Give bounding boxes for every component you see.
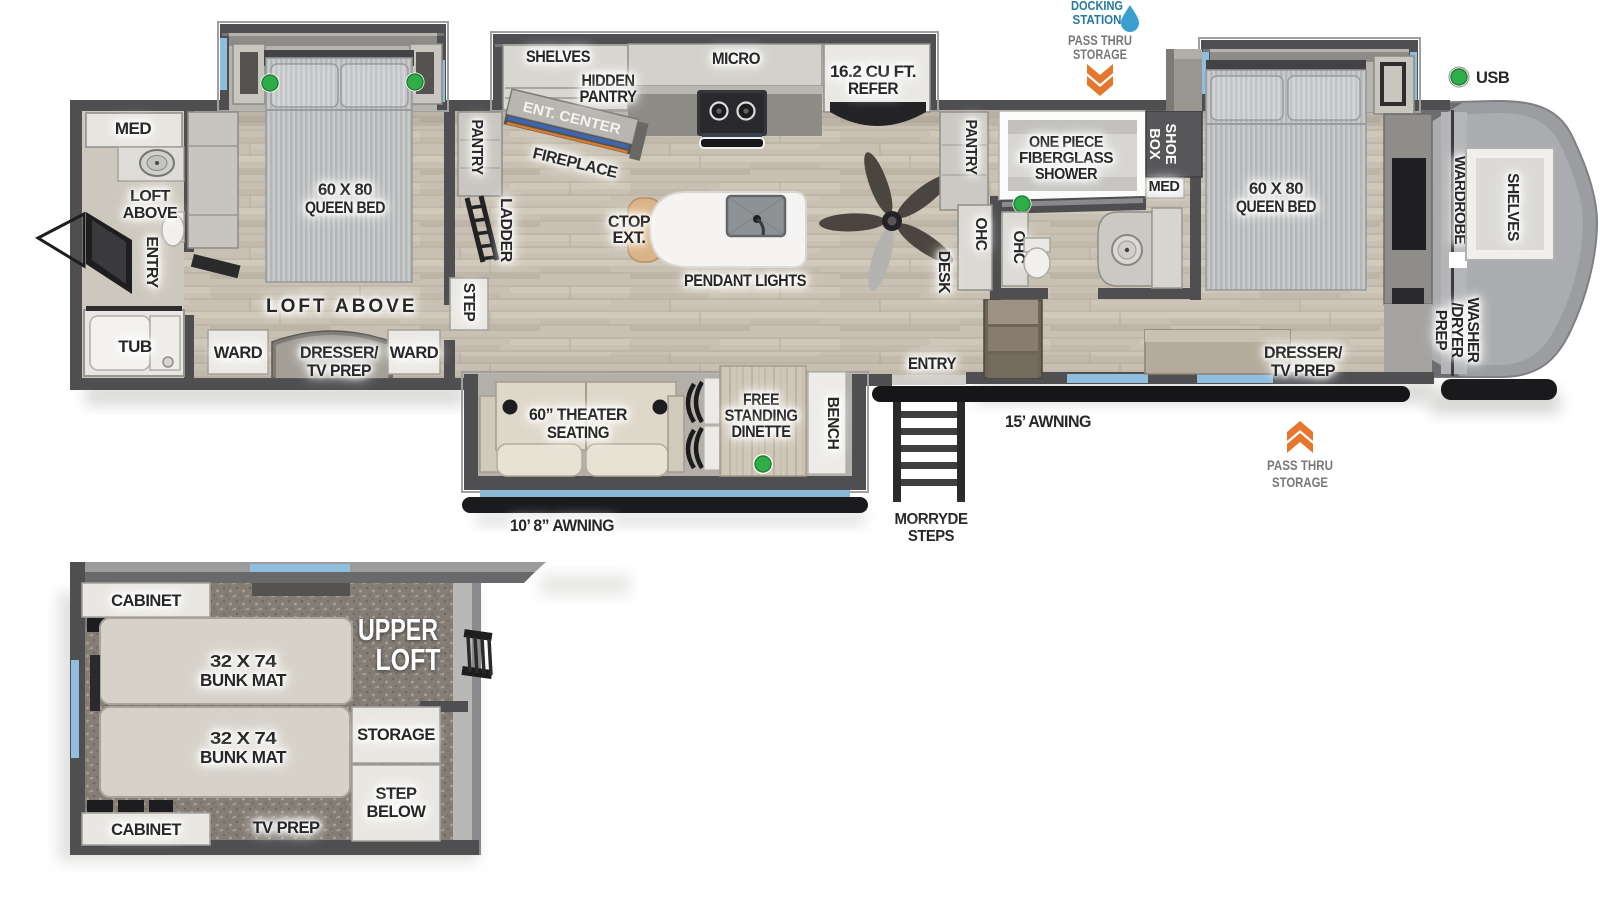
svg-text:CABINET: CABINET: [111, 821, 181, 839]
svg-text:BOX: BOX: [1146, 128, 1162, 160]
svg-text:STORAGE: STORAGE: [1073, 47, 1127, 62]
svg-text:60 X 80: 60 X 80: [1249, 180, 1303, 198]
svg-text:WARD: WARD: [214, 344, 263, 362]
svg-text:REFER: REFER: [848, 80, 899, 98]
svg-text:STORAGE: STORAGE: [357, 726, 435, 744]
svg-text:STEP: STEP: [460, 283, 477, 322]
svg-text:BUNK MAT: BUNK MAT: [200, 747, 287, 767]
svg-text:BELOW: BELOW: [367, 803, 427, 821]
svg-text:TUB: TUB: [118, 337, 152, 356]
svg-text:EXT.: EXT.: [613, 229, 646, 247]
svg-text:ONE PIECE: ONE PIECE: [1029, 134, 1103, 151]
svg-text:STEPS: STEPS: [908, 528, 954, 545]
svg-text:LADDER: LADDER: [497, 198, 514, 263]
svg-text:STATION: STATION: [1073, 13, 1122, 27]
svg-text:LOFT: LOFT: [376, 642, 441, 677]
svg-text:PANTRY: PANTRY: [962, 120, 979, 176]
svg-text:WARD: WARD: [390, 344, 439, 362]
svg-text:60 X 80: 60 X 80: [318, 181, 372, 199]
svg-text:/DRYER: /DRYER: [1448, 303, 1465, 358]
svg-text:SHELVES: SHELVES: [526, 48, 590, 66]
svg-text:ABOVE: ABOVE: [123, 205, 178, 222]
svg-text:PANTRY: PANTRY: [468, 120, 485, 176]
svg-text:PANTRY: PANTRY: [580, 88, 637, 106]
svg-text:32 X 74: 32 X 74: [210, 728, 277, 748]
svg-text:60” THEATER: 60” THEATER: [529, 406, 628, 424]
svg-text:DINETTE: DINETTE: [732, 423, 791, 441]
svg-text:SHOWER: SHOWER: [1035, 166, 1097, 183]
svg-text:MED: MED: [115, 119, 152, 138]
svg-text:15’ AWNING: 15’ AWNING: [1005, 413, 1091, 431]
svg-text:WASHER: WASHER: [1464, 297, 1481, 362]
svg-text:FIBERGLASS: FIBERGLASS: [1019, 150, 1113, 167]
svg-text:PENDANT LIGHTS: PENDANT LIGHTS: [684, 272, 806, 290]
svg-text:STEP: STEP: [375, 785, 417, 803]
svg-text:10’ 8” AWNING: 10’ 8” AWNING: [510, 517, 614, 535]
svg-text:TV PREP: TV PREP: [252, 819, 320, 837]
svg-text:DOCKING: DOCKING: [1071, 0, 1123, 13]
svg-text:DRESSER/: DRESSER/: [300, 344, 379, 362]
svg-text:DRESSER/: DRESSER/: [1264, 344, 1343, 362]
svg-text:QUEEN BED: QUEEN BED: [1236, 198, 1316, 216]
svg-text:BUNK MAT: BUNK MAT: [200, 670, 287, 690]
svg-text:USB: USB: [1476, 69, 1510, 87]
svg-text:OHC: OHC: [972, 218, 989, 251]
svg-text:STORAGE: STORAGE: [1272, 474, 1328, 490]
svg-text:LOFT ABOVE: LOFT ABOVE: [266, 296, 414, 317]
svg-text:PASS THRU: PASS THRU: [1068, 33, 1132, 48]
svg-text:TV PREP: TV PREP: [1271, 362, 1335, 380]
svg-text:TV PREP: TV PREP: [307, 362, 371, 380]
svg-text:DESK: DESK: [935, 251, 952, 294]
svg-text:ENTRY: ENTRY: [908, 355, 956, 373]
svg-text:SEATING: SEATING: [547, 424, 609, 442]
svg-text:MED: MED: [1149, 179, 1180, 195]
svg-text:PREP: PREP: [1432, 310, 1449, 350]
svg-text:PASS THRU: PASS THRU: [1267, 457, 1333, 473]
svg-text:LOFT: LOFT: [130, 188, 170, 205]
svg-text:BENCH: BENCH: [824, 397, 841, 450]
svg-text:SHOE: SHOE: [1162, 123, 1178, 164]
svg-text:MORRYDE: MORRYDE: [895, 511, 968, 528]
svg-text:16.2 CU FT.: 16.2 CU FT.: [830, 63, 916, 81]
svg-text:SHELVES: SHELVES: [1504, 173, 1521, 241]
svg-text:32 X 74: 32 X 74: [210, 651, 277, 671]
svg-text:CABINET: CABINET: [111, 592, 181, 610]
svg-text:ENTRY: ENTRY: [143, 236, 160, 288]
svg-text:MICRO: MICRO: [712, 50, 761, 68]
svg-text:QUEEN BED: QUEEN BED: [305, 199, 385, 217]
